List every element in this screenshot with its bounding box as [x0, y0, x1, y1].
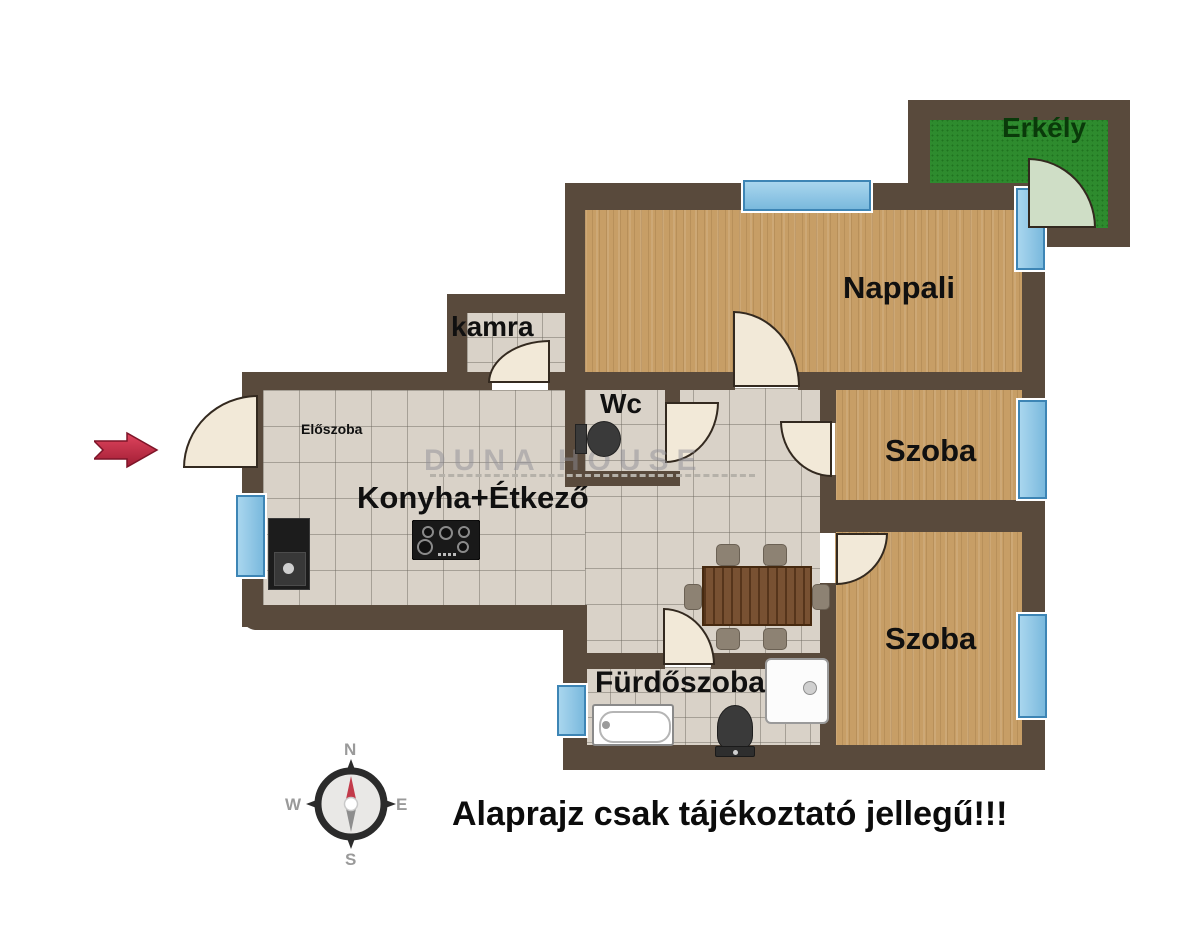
wc-toilet-icon	[575, 424, 587, 454]
bathtub-icon	[592, 704, 674, 746]
room-label-eloszoba: Előszoba	[301, 421, 362, 437]
kitchen-sink-icon	[268, 518, 310, 590]
bedroom2-window	[1018, 614, 1047, 718]
compass-south-label: S	[345, 850, 356, 870]
compass-rose	[306, 759, 396, 849]
compass-east-label: E	[396, 795, 407, 815]
dining-chair	[763, 628, 787, 650]
toilet-button	[733, 750, 738, 755]
room-label-furdoszoba: Fürdőszoba	[595, 666, 765, 700]
hall-window	[236, 495, 265, 577]
dining-chair	[716, 628, 740, 650]
room-label-wc: Wc	[600, 388, 642, 420]
room-label-nappali: Nappali	[843, 270, 955, 306]
living-room-floor	[585, 208, 1022, 375]
kitchen-wall-bottom	[242, 605, 574, 630]
entrance-door-arc	[183, 395, 258, 468]
room-label-kamra: kamra	[451, 311, 534, 343]
bedrooms-divider-wall	[820, 500, 1045, 532]
bathroom-toilet-tank	[715, 746, 755, 757]
bedroom1-window	[1018, 400, 1047, 499]
disclaimer-text: Alaprajz csak tájékoztató jellegű!!!	[452, 795, 1052, 834]
outer-wall-bottom	[563, 745, 1045, 770]
living-room-window	[743, 180, 871, 211]
pantry-wall-bottom-left	[447, 372, 492, 390]
bathtub-basin	[599, 711, 671, 743]
sink-faucet	[283, 563, 294, 574]
living-room-wall-bottom-right	[798, 372, 1045, 390]
dining-table-icon	[702, 566, 812, 626]
dining-chair	[812, 584, 830, 610]
hall-wall-top	[242, 372, 467, 390]
compass-icon: N S W E	[283, 736, 419, 872]
compass-north-label: N	[344, 740, 356, 760]
shower-tray-icon	[765, 658, 829, 724]
balcony-wall-bottom	[1040, 228, 1130, 247]
wc-toilet-bowl	[587, 421, 621, 457]
compass-west-label: W	[285, 795, 301, 815]
stove-icon	[412, 520, 480, 560]
bedroom1-wall-left-upper	[820, 390, 836, 423]
floor-plan: DUNA HOUSE	[0, 0, 1200, 942]
room-label-erkely: Erkély	[1002, 112, 1086, 144]
agency-watermark: DUNA HOUSE	[424, 444, 705, 478]
bathtub-faucet	[602, 721, 610, 729]
bathroom-window	[557, 685, 586, 736]
room-label-konyha-etkezo: Konyha+Étkező	[357, 480, 589, 516]
shower-drain	[803, 681, 817, 695]
room-label-szoba-1: Szoba	[885, 433, 976, 469]
dining-chair	[684, 584, 702, 610]
dining-chair	[763, 544, 787, 566]
room-label-szoba-2: Szoba	[885, 621, 976, 657]
living-room-wall-bottom-left	[565, 372, 735, 390]
balcony-wall-right	[1108, 100, 1130, 247]
bathroom-toilet-icon	[717, 705, 753, 749]
entrance-arrow-icon	[94, 430, 160, 470]
dining-chair	[716, 544, 740, 566]
